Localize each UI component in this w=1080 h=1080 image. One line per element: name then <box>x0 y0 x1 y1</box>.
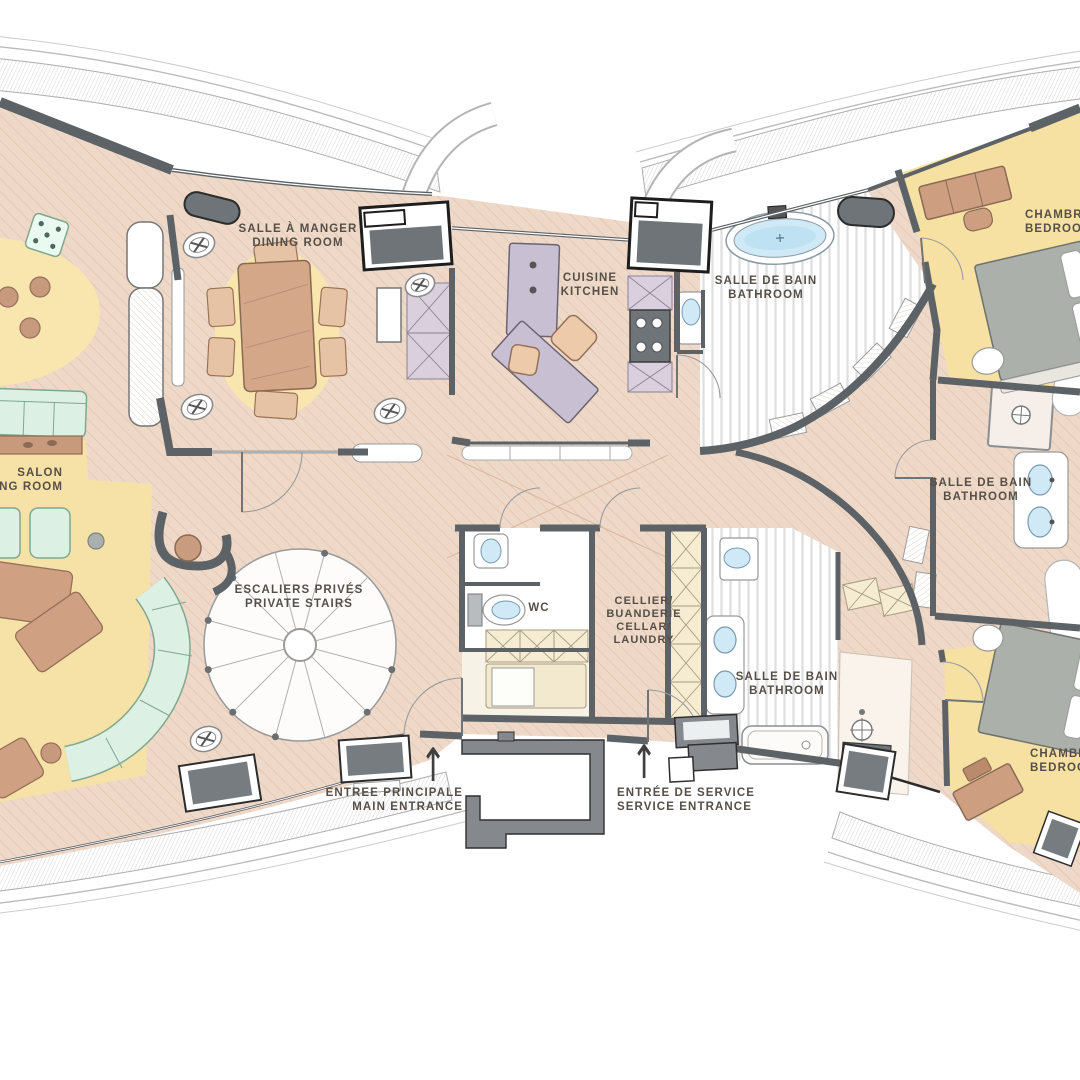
service-porch <box>667 714 740 782</box>
right-porch <box>837 744 896 800</box>
dining-table <box>238 260 317 392</box>
service-toilet <box>720 538 758 580</box>
fridge-cabinet <box>377 288 401 342</box>
straight-sofa <box>0 388 87 437</box>
bench-oval <box>837 196 895 228</box>
shower <box>988 384 1054 450</box>
label-service-entrance: ENTRÉE DE SERVICE SERVICE ENTRANCE <box>617 786 755 814</box>
label-bedroom-2: CHAMBRE BEDROOM <box>1030 747 1080 775</box>
round-pouf <box>41 743 61 763</box>
floor-plan-drawing: ↑ ↑ <box>0 0 1080 1080</box>
label-bathroom-2: SALLE DE BAIN BATHROOM <box>930 476 1032 504</box>
main-entrance-arrow-icon: ↑ <box>420 739 447 792</box>
stove <box>630 310 670 362</box>
wc-toilet <box>468 594 525 626</box>
label-living-room: SALON LIVING ROOM <box>0 466 63 494</box>
label-dining-room: SALLE À MANGER DINING ROOM <box>239 222 358 250</box>
window-module-b <box>628 198 712 272</box>
wc-sink <box>474 534 508 568</box>
console-table <box>0 436 82 454</box>
label-wc: WC <box>528 601 549 615</box>
label-bathroom-master: SALLE DE BAIN BATHROOM <box>715 274 817 302</box>
label-bathroom-3: SALLE DE BAIN BATHROOM <box>736 670 838 698</box>
window-module-a <box>360 202 452 270</box>
label-kitchen: CUISINE KITCHEN <box>561 271 620 299</box>
gray-side-table <box>88 533 104 549</box>
mint-armchairs <box>0 508 70 558</box>
pouf-oval <box>973 625 1003 651</box>
label-bedroom-1: CHAMBRE BEDROOM <box>1025 208 1080 236</box>
service-entrance-arrow-icon: ↑ <box>631 736 658 789</box>
toilet <box>678 292 704 344</box>
kitchen-window-sill <box>462 446 632 460</box>
label-private-stairs: ESCALIERS PRIVÉS PRIVATE STAIRS <box>235 583 364 611</box>
label-main-entrance: ENTREE PRINCIPALE MAIN ENTRANCE <box>326 786 463 814</box>
stair-core <box>462 740 604 848</box>
floor-plan-page: ↑ ↑ SALLE À MANGER DINING ROOM CUISINE K… <box>0 0 1080 1080</box>
label-cellar-laundry: CELLIER/ BUANDERIE CELLAR/ LAUNDRY <box>606 595 681 647</box>
